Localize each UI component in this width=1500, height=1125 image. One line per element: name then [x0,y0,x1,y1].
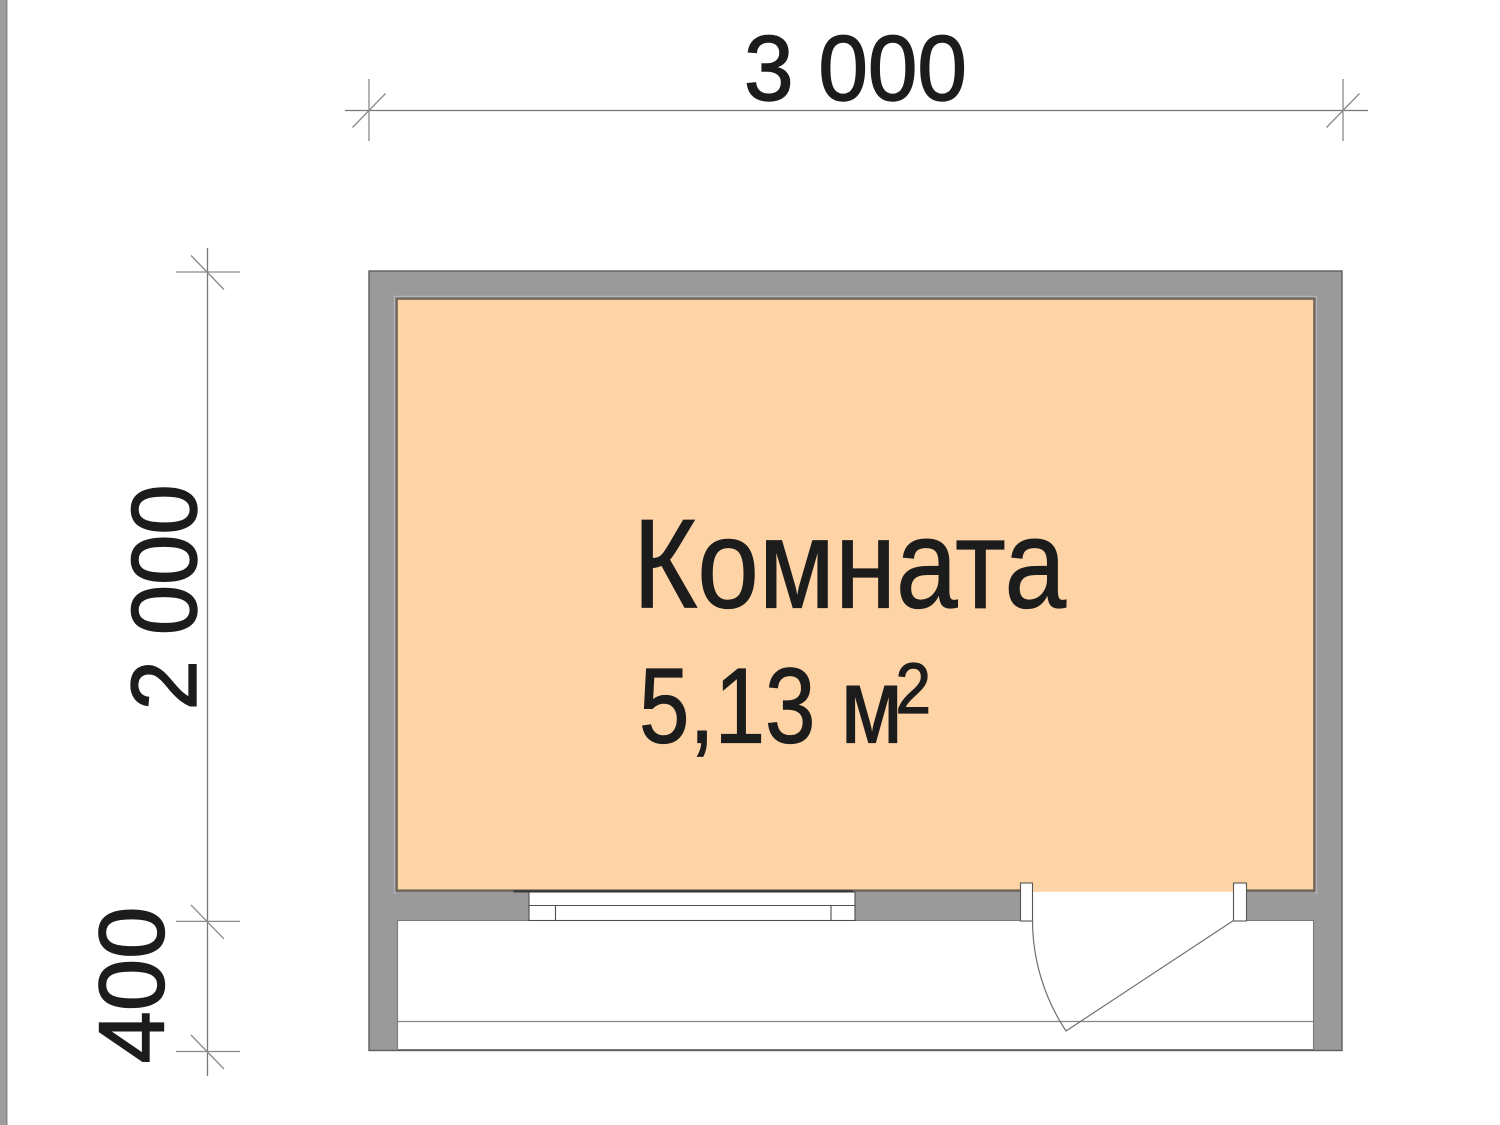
svg-text:2: 2 [896,650,932,729]
svg-text:400: 400 [80,907,184,1064]
svg-text:5,13 м: 5,13 м [639,646,903,766]
svg-text:Комната: Комната [633,494,1067,635]
svg-text:2 000: 2 000 [112,484,216,710]
svg-text:3 000: 3 000 [744,16,967,120]
